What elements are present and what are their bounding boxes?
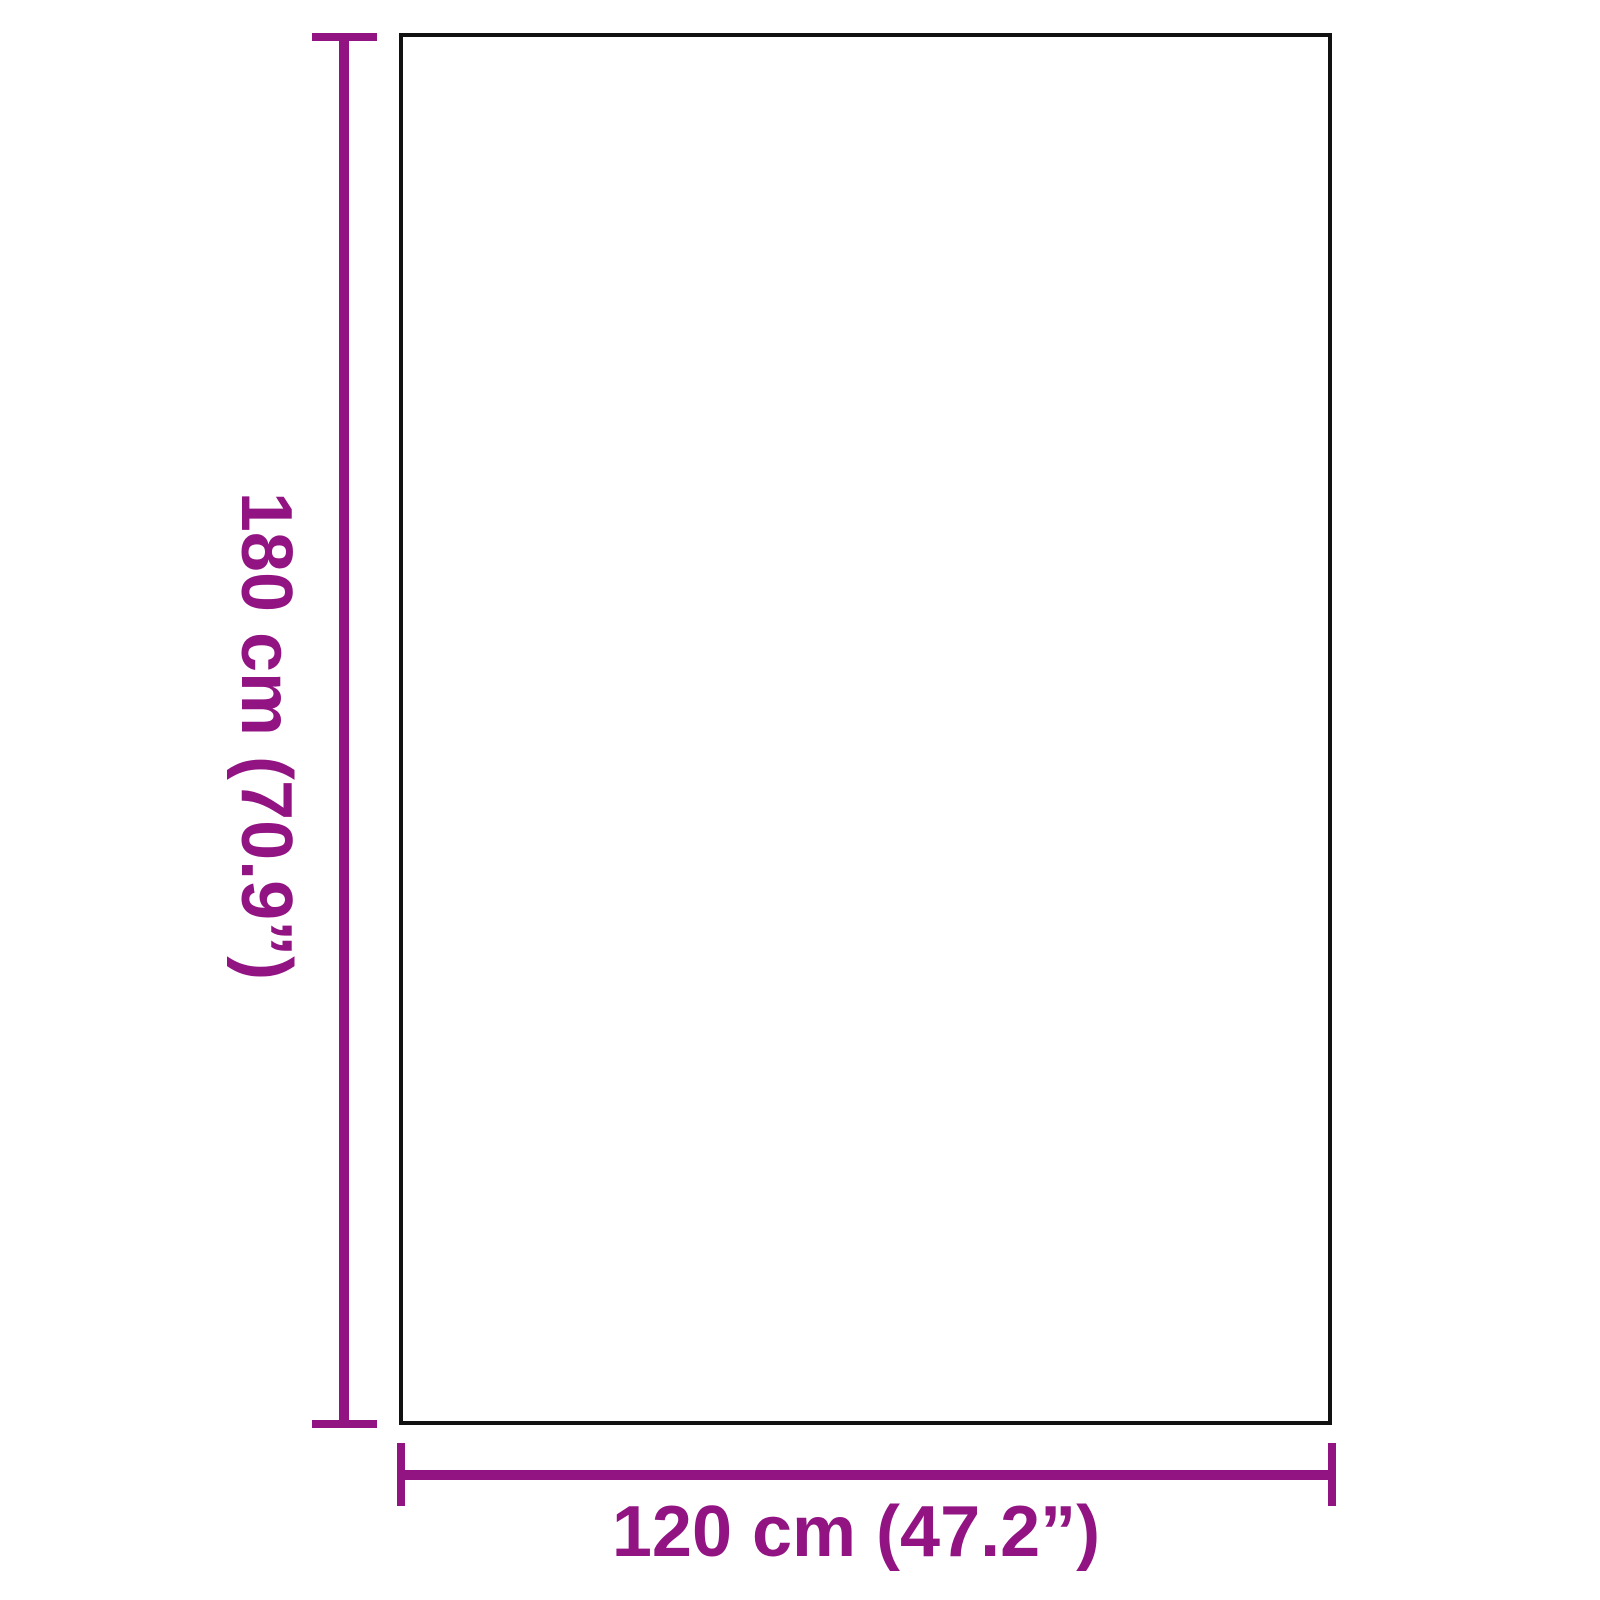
horizontal-dimension-right-tick xyxy=(1328,1443,1336,1506)
height-dimension-label: 180 cm (70.9”) xyxy=(230,492,302,980)
vertical-dimension-line xyxy=(339,39,349,1421)
product-outline-rectangle xyxy=(399,33,1332,1425)
vertical-dimension-bottom-tick xyxy=(312,1420,377,1428)
width-dimension-label: 120 cm (47.2”) xyxy=(612,1496,1100,1568)
horizontal-dimension-line xyxy=(401,1470,1332,1480)
dimension-diagram: 180 cm (70.9”) 120 cm (47.2”) xyxy=(0,0,1600,1600)
